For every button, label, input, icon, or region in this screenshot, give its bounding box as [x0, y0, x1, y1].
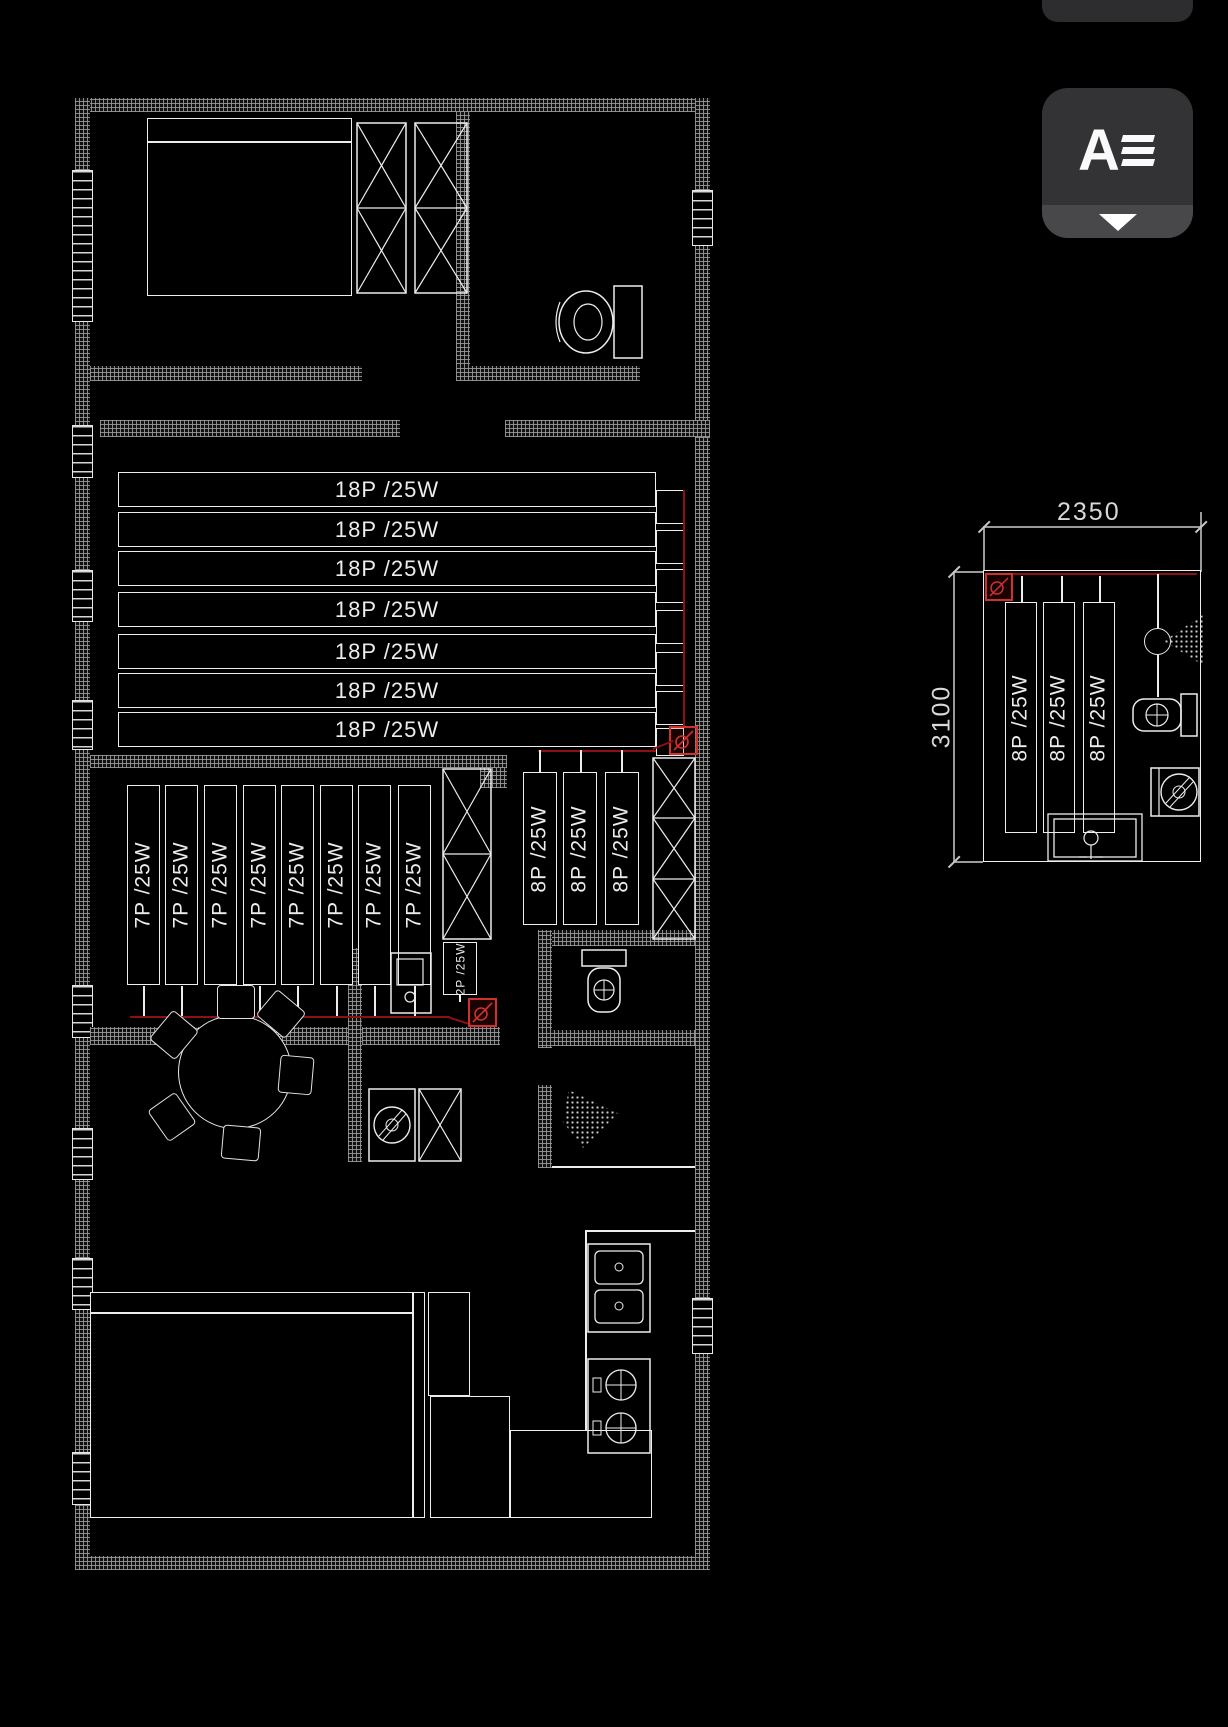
wall-bottom: [75, 1556, 710, 1570]
rack-column-label: 7P /25W: [325, 841, 349, 928]
dim-width-label: 2350: [1057, 498, 1121, 527]
wall-shelfroom-top-right: [505, 420, 710, 437]
power-socket-icon: [468, 998, 497, 1027]
chair: [221, 1124, 262, 1161]
tall-cabinet: [428, 1292, 470, 1396]
wire-stem: [459, 994, 461, 1002]
shelf-row-stub: [656, 490, 684, 524]
kitchen-sink-icon: [587, 1243, 651, 1333]
rack-column-label: 7P /25W: [248, 841, 272, 928]
dim-ext: [983, 526, 985, 570]
bed: [147, 142, 352, 296]
wall-bedroom-bottom-right: [456, 366, 640, 381]
dim-ext: [1200, 512, 1202, 572]
wire-stem: [1099, 576, 1101, 602]
dim-ext: [953, 861, 983, 863]
rack-column: 7P /25W: [165, 785, 198, 985]
wire-stem: [539, 750, 541, 774]
wall-kitchen-divider: [538, 1085, 552, 1168]
text-lines-icon: [1121, 135, 1155, 142]
stove-icon: [587, 1358, 651, 1454]
cad-canvas[interactable]: 18P /25W 18P /25W 18P /25W 18P /25W 18P …: [0, 0, 1228, 1727]
shelf-row-stub: [656, 530, 684, 564]
rack-column: 7P /25W: [320, 785, 353, 985]
window: [692, 190, 713, 246]
wall-top: [75, 98, 710, 112]
window: [72, 570, 93, 622]
wire-stem: [336, 986, 338, 1016]
wire: [538, 750, 656, 752]
rack-column: 7P /25W: [127, 785, 160, 985]
shelf-row: 18P /25W: [118, 551, 656, 586]
shelf-row-stub: [656, 610, 684, 644]
rack-column: 7P /25W: [204, 785, 237, 985]
basin-cabinet-icon: [390, 952, 432, 1014]
washing-machine-icon: [368, 1088, 416, 1162]
shelf-row: 18P /25W: [118, 592, 656, 627]
dim-height-label: 3100: [927, 685, 956, 749]
window: [72, 700, 93, 750]
rack-column-label: 8P /25W: [1009, 674, 1033, 761]
bed-edge-line: [90, 1312, 412, 1314]
rack-column-label: 8P /25W: [1047, 674, 1071, 761]
shelf-row-label: 18P /25W: [335, 717, 439, 743]
rack-column-label: 7P /25W: [286, 841, 310, 928]
toilet-icon: [578, 948, 630, 1016]
bed-headboard: [147, 118, 352, 142]
power-socket-icon: [985, 573, 1013, 601]
shelf-row-label: 18P /25W: [335, 678, 439, 704]
shelf-row: 18P /25W: [118, 634, 656, 669]
rack-column-label: 8P /25W: [568, 805, 592, 892]
counter-line: [585, 1230, 695, 1232]
toilet-icon: [548, 282, 648, 364]
toolbar-button-partial[interactable]: [1042, 0, 1193, 22]
wire: [1012, 573, 1197, 575]
rack-column: 7P /25W: [243, 785, 276, 985]
wire-stem: [621, 750, 623, 774]
wardrobe-x-icon: [356, 122, 407, 294]
rack-column-label: 7P /25W: [209, 841, 233, 928]
shelf-row: 18P /25W: [118, 512, 656, 547]
cabinet-x-icon: [442, 768, 492, 940]
chair: [217, 985, 255, 1019]
wire-stem: [181, 986, 183, 1016]
window: [72, 1128, 93, 1180]
pipe-line: [1157, 655, 1159, 697]
rack-column: 8P /25W: [1005, 602, 1037, 833]
shelf-row-label: 18P /25W: [335, 597, 439, 623]
wall-shelfroom-bottom: [90, 755, 507, 768]
shelf-row: 18P /25W: [118, 472, 656, 507]
rack-column: 8P /25W: [1083, 602, 1115, 833]
washing-machine-icon: [1150, 767, 1200, 817]
wire-stem: [1061, 576, 1063, 602]
wire-stem: [374, 986, 376, 1016]
wall-wc-bottom: [538, 1030, 695, 1046]
shelf-row-label: 18P /25W: [335, 517, 439, 543]
text-lines-icon: [1121, 159, 1155, 166]
annotation-style-button[interactable]: A: [1042, 88, 1193, 238]
cabinet-x-icon: [418, 1088, 462, 1162]
counter: [430, 1396, 510, 1518]
rack-column-label: 7P /25W: [132, 841, 156, 928]
rack-column: 8P /25W: [605, 772, 639, 925]
rack-column: 8P /25W: [523, 772, 557, 925]
window: [692, 1298, 713, 1354]
shelf-row-label: 18P /25W: [335, 477, 439, 503]
rack-column-2p: 2P /25W: [443, 942, 477, 995]
rack-column-label: 7P /25W: [170, 841, 194, 928]
shelf-row-stub: [656, 569, 684, 603]
rack-column-label: 7P /25W: [403, 841, 427, 928]
wire-stem: [143, 986, 145, 1016]
shelf-row-label: 18P /25W: [335, 556, 439, 582]
rack-column: 7P /25W: [358, 785, 391, 985]
dim-ext: [953, 571, 983, 573]
expand-strip[interactable]: [1042, 205, 1193, 238]
rack-column: 8P /25W: [563, 772, 597, 925]
shelf-row-stub: [656, 691, 684, 725]
shelf-row-label: 18P /25W: [335, 639, 439, 665]
window: [72, 425, 93, 478]
rack-column: 8P /25W: [1043, 602, 1075, 833]
shelf-row: 18P /25W: [118, 712, 656, 747]
cabinet-x-icon: [652, 757, 696, 940]
bed-platform: [90, 1292, 425, 1518]
wall-shelfroom-top-left: [100, 420, 400, 437]
text-lines-icon: [1121, 147, 1155, 154]
bed-edge-line: [412, 1292, 414, 1518]
window: [72, 170, 93, 322]
rack-column-label: 8P /25W: [528, 805, 552, 892]
toilet-icon: [1131, 693, 1199, 737]
basin-icon: [1047, 813, 1143, 862]
wire-stem: [580, 750, 582, 774]
shelf-row-stub: [656, 652, 684, 686]
wall-bedroom-bottom-left: [90, 366, 362, 381]
rack-column-label: 7P /25W: [363, 841, 387, 928]
letter-a-icon: A: [1078, 122, 1120, 180]
wire: [683, 490, 685, 728]
chair: [277, 1055, 314, 1096]
chevron-down-icon: [1099, 214, 1137, 231]
wire-stem: [1021, 576, 1023, 602]
plant-icon: [560, 1090, 618, 1148]
rack-column-label: 8P /25W: [610, 805, 634, 892]
wardrobe-x-icon: [414, 122, 468, 294]
shelf-row: 18P /25W: [118, 673, 656, 708]
rack-column: 7P /25W: [281, 785, 314, 985]
rack-column-label: 2P /25W: [453, 942, 467, 995]
alcove-line: [552, 1166, 695, 1168]
rack-column-label: 8P /25W: [1087, 674, 1111, 761]
pipe-line: [1157, 574, 1159, 628]
